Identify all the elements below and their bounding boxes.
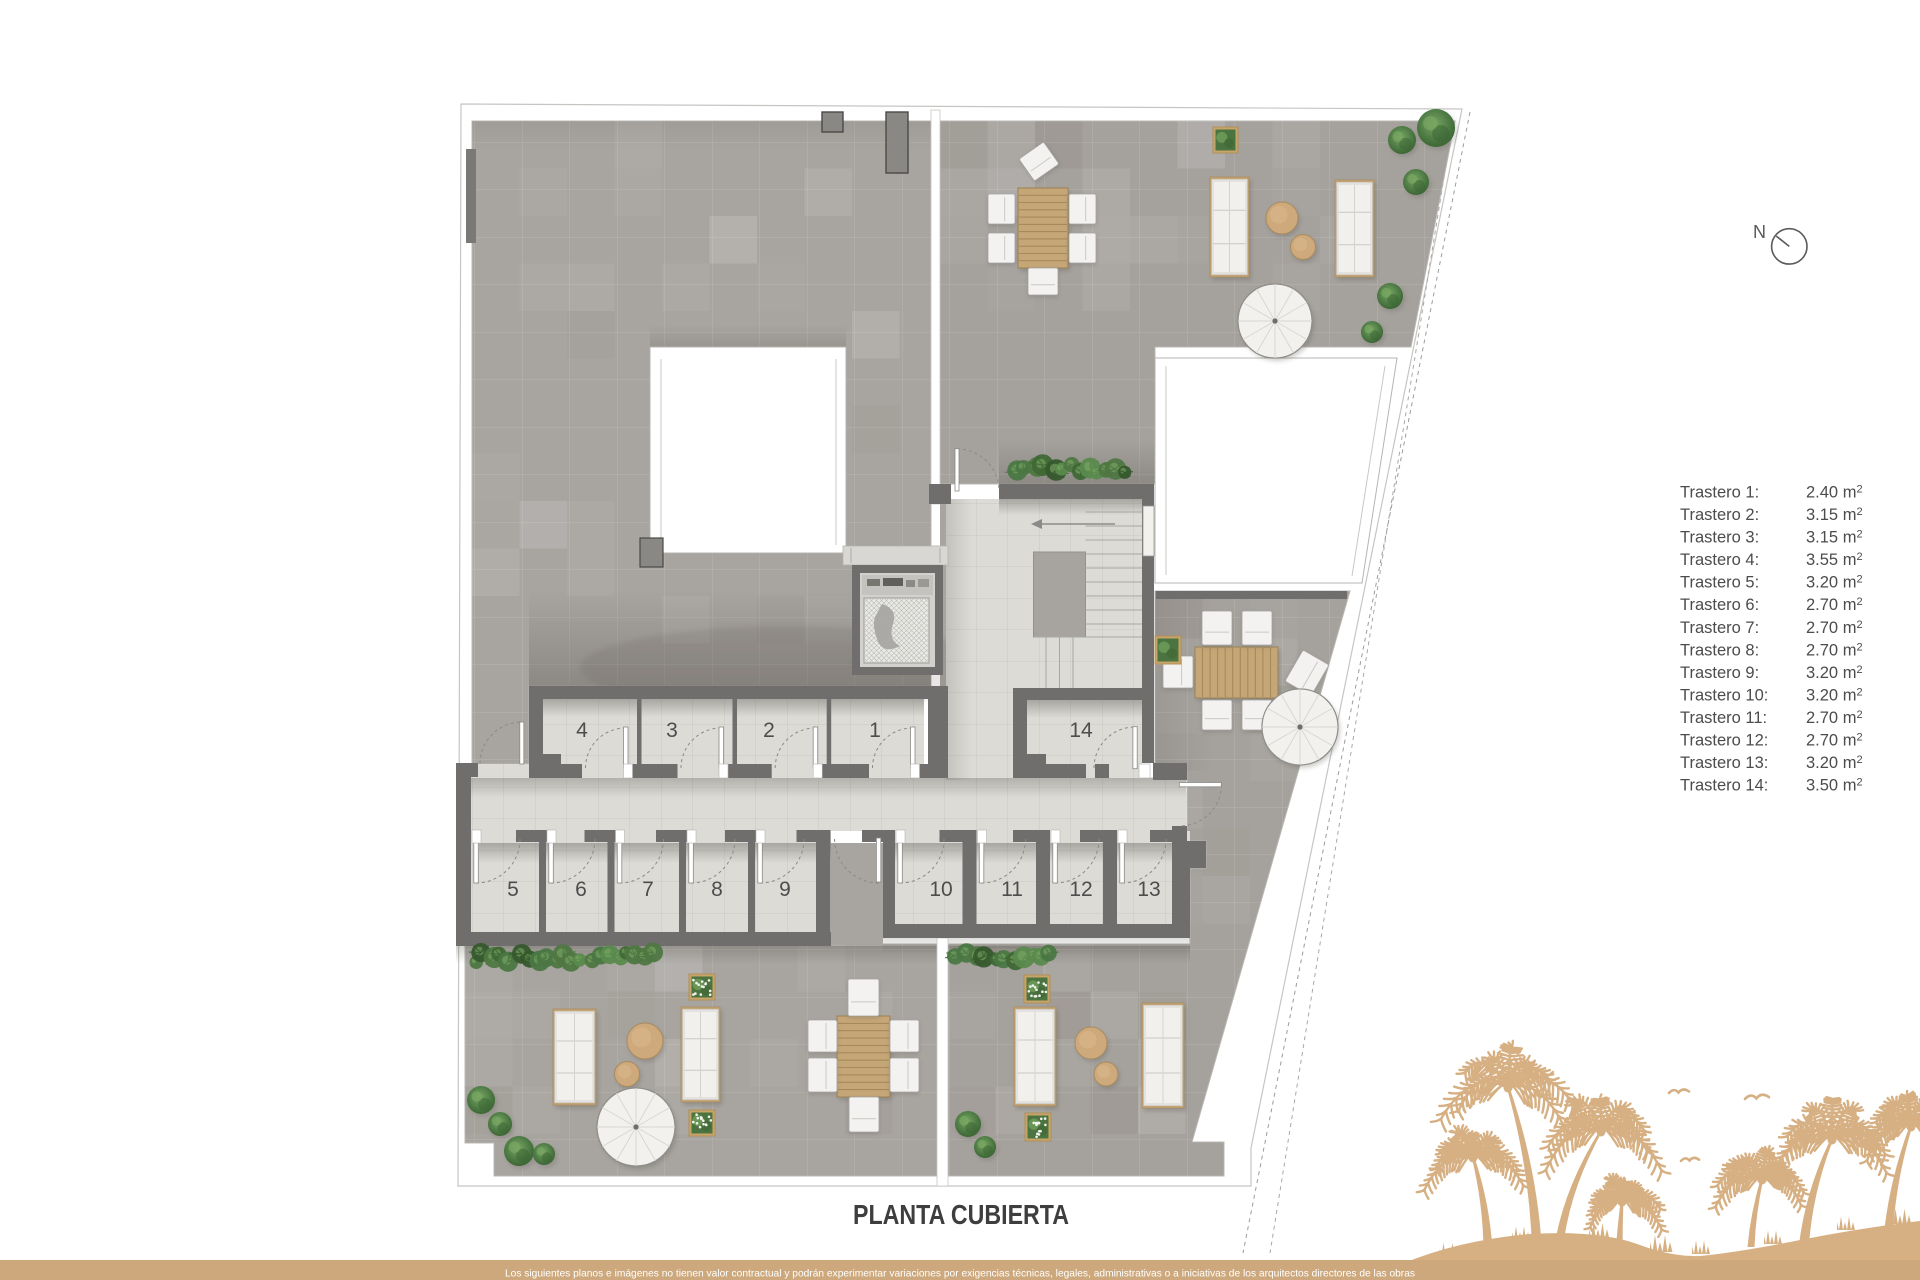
svg-text:3.15 m2: 3.15 m2 [1806, 506, 1863, 524]
svg-text:6: 6 [575, 878, 587, 901]
svg-text:2.70 m2: 2.70 m2 [1806, 596, 1863, 614]
svg-text:3: 3 [666, 719, 678, 742]
svg-text:13: 13 [1137, 878, 1160, 901]
svg-text:14: 14 [1069, 719, 1093, 742]
svg-text:Trastero 1:: Trastero 1: [1680, 484, 1759, 502]
svg-text:Trastero 12:: Trastero 12: [1680, 732, 1768, 750]
svg-text:2.70 m2: 2.70 m2 [1806, 619, 1863, 637]
svg-text:3.55 m2: 3.55 m2 [1806, 551, 1863, 569]
svg-text:2.40 m2: 2.40 m2 [1806, 484, 1863, 502]
svg-text:Trastero 8:: Trastero 8: [1680, 641, 1759, 659]
svg-text:9: 9 [779, 878, 791, 901]
svg-text:5: 5 [507, 878, 519, 901]
svg-text:Trastero 10:: Trastero 10: [1680, 687, 1768, 705]
svg-text:10: 10 [929, 878, 952, 901]
svg-text:7: 7 [642, 878, 654, 901]
svg-text:3.50 m2: 3.50 m2 [1806, 777, 1863, 795]
svg-text:Trastero 2:: Trastero 2: [1680, 506, 1759, 524]
svg-text:3.15 m2: 3.15 m2 [1806, 529, 1863, 547]
svg-text:2.70 m2: 2.70 m2 [1806, 641, 1863, 659]
svg-text:2.70 m2: 2.70 m2 [1806, 709, 1863, 727]
svg-text:Trastero 13:: Trastero 13: [1680, 754, 1768, 772]
svg-text:Trastero 9:: Trastero 9: [1680, 664, 1759, 682]
svg-text:Trastero 11:: Trastero 11: [1680, 709, 1767, 727]
svg-text:3.20 m2: 3.20 m2 [1806, 687, 1863, 705]
svg-text:2: 2 [763, 719, 775, 742]
svg-text:11: 11 [1001, 878, 1023, 901]
svg-text:Los siguientes planos e imágen: Los siguientes planos e imágenes no tien… [505, 1268, 1415, 1280]
svg-text:1: 1 [869, 719, 881, 742]
svg-text:Trastero 4:: Trastero 4: [1680, 551, 1759, 569]
svg-text:4: 4 [576, 719, 588, 742]
svg-text:3.20 m2: 3.20 m2 [1806, 664, 1863, 682]
svg-text:PLANTA CUBIERTA: PLANTA CUBIERTA [853, 1199, 1069, 1230]
svg-text:3.20 m2: 3.20 m2 [1806, 754, 1863, 772]
svg-text:12: 12 [1069, 878, 1092, 901]
svg-text:Trastero 5:: Trastero 5: [1680, 574, 1759, 592]
svg-text:3.20 m2: 3.20 m2 [1806, 574, 1863, 592]
svg-text:N: N [1753, 222, 1766, 242]
svg-text:Trastero 6:: Trastero 6: [1680, 596, 1759, 614]
svg-text:Trastero 7:: Trastero 7: [1680, 619, 1759, 637]
svg-text:8: 8 [711, 878, 723, 901]
svg-text:Trastero 3:: Trastero 3: [1680, 529, 1759, 547]
svg-text:2.70 m2: 2.70 m2 [1806, 732, 1863, 750]
svg-text:Trastero 14:: Trastero 14: [1680, 777, 1768, 795]
